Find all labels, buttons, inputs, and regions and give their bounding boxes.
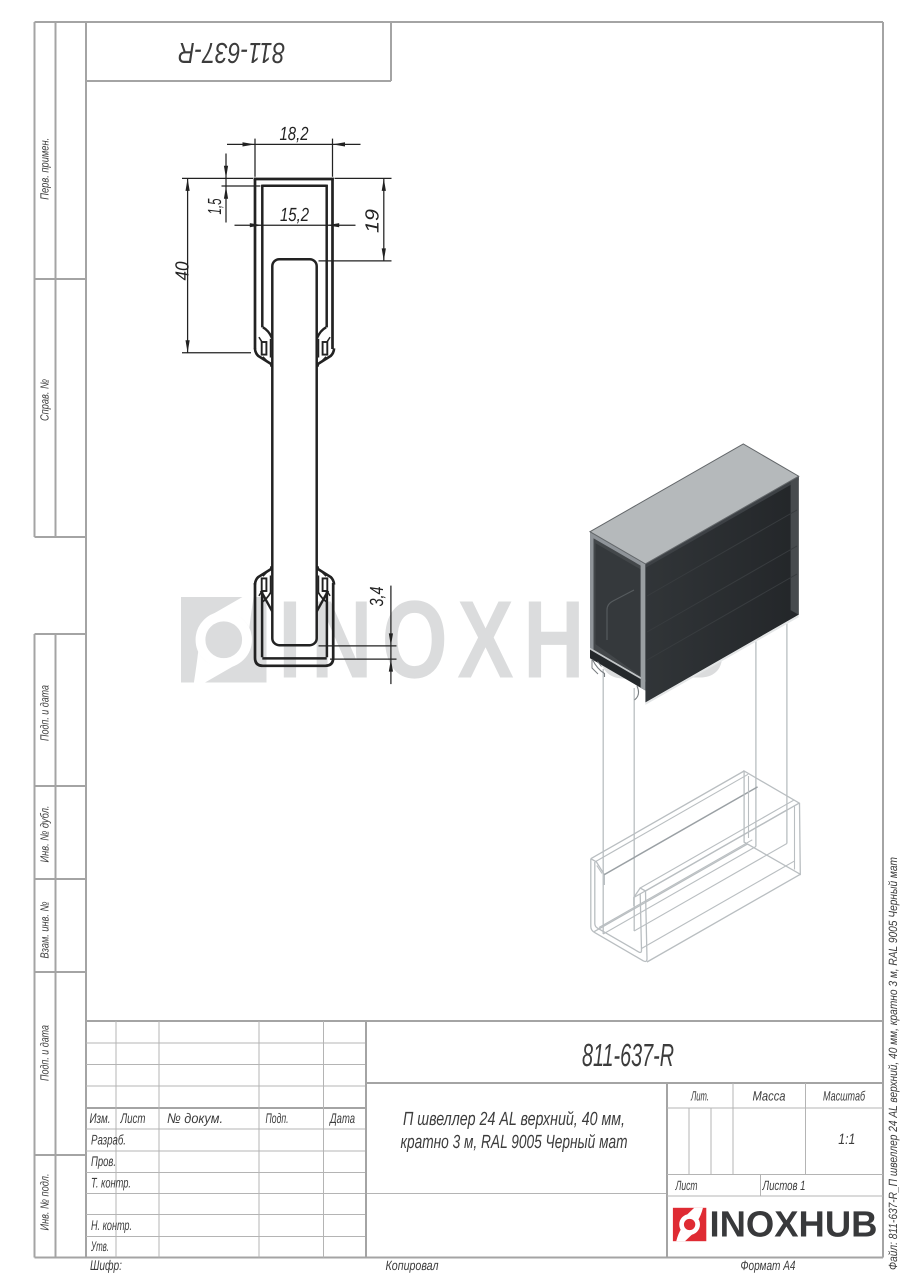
svg-text:Пров.: Пров. — [91, 1153, 116, 1169]
svg-text:Изм.: Изм. — [90, 1110, 111, 1126]
svg-text:3,4: 3,4 — [367, 587, 388, 607]
svg-text:Справ. №: Справ. № — [38, 379, 52, 421]
svg-text:1:1: 1:1 — [838, 1131, 855, 1148]
svg-text:Шифр:: Шифр: — [90, 1257, 122, 1273]
svg-text:№ докум.: № докум. — [167, 1110, 223, 1126]
svg-text:Инв. № подл.: Инв. № подл. — [38, 1174, 52, 1231]
svg-text:Разраб.: Разраб. — [91, 1132, 126, 1148]
svg-text:811-637-R: 811-637-R — [178, 36, 285, 68]
svg-text:Т. контр.: Т. контр. — [91, 1175, 131, 1191]
svg-text:Лист: Лист — [675, 1178, 698, 1193]
svg-text:15,2: 15,2 — [280, 205, 309, 226]
svg-text:Листов 1: Листов 1 — [762, 1178, 806, 1193]
svg-text:Взам. инв. №: Взам. инв. № — [38, 901, 52, 958]
svg-text:Подп. и дата: Подп. и дата — [38, 685, 52, 741]
svg-text:Дата: Дата — [329, 1110, 355, 1126]
svg-text:Масштаб: Масштаб — [823, 1089, 865, 1104]
svg-text:Перв. примен.: Перв. примен. — [38, 138, 52, 200]
svg-text:Лист: Лист — [120, 1110, 146, 1126]
svg-text:19: 19 — [362, 209, 383, 233]
svg-text:1,5: 1,5 — [205, 198, 226, 214]
svg-text:Копировал: Копировал — [386, 1258, 439, 1273]
svg-text:Масса: Масса — [753, 1089, 786, 1104]
svg-text:40: 40 — [173, 261, 194, 280]
svg-text:Инв. № дубл.: Инв. № дубл. — [38, 806, 52, 863]
svg-text:18,2: 18,2 — [280, 124, 309, 145]
svg-text:Утв.: Утв. — [90, 1238, 109, 1254]
svg-text:Файл: 811-637-R_П швеллер 24 A: Файл: 811-637-R_П швеллер 24 AL верхний,… — [886, 857, 900, 1270]
svg-text:Подп. и дата: Подп. и дата — [38, 1025, 52, 1081]
svg-text:Подп.: Подп. — [266, 1110, 289, 1126]
svg-text:Лит.: Лит. — [690, 1089, 709, 1104]
svg-text:Формат А4: Формат А4 — [741, 1258, 796, 1273]
svg-text:INOXHUB: INOXHUB — [710, 1204, 878, 1245]
svg-text:П швеллер 24 AL верхний, 40 мм: П швеллер 24 AL верхний, 40 мм, — [403, 1109, 625, 1130]
svg-text:кратно 3 м, RAL 9005 Черный ма: кратно 3 м, RAL 9005 Черный мат — [401, 1132, 628, 1153]
svg-text:811-637-R: 811-637-R — [582, 1037, 674, 1073]
svg-text:Н. контр.: Н. контр. — [91, 1217, 132, 1233]
